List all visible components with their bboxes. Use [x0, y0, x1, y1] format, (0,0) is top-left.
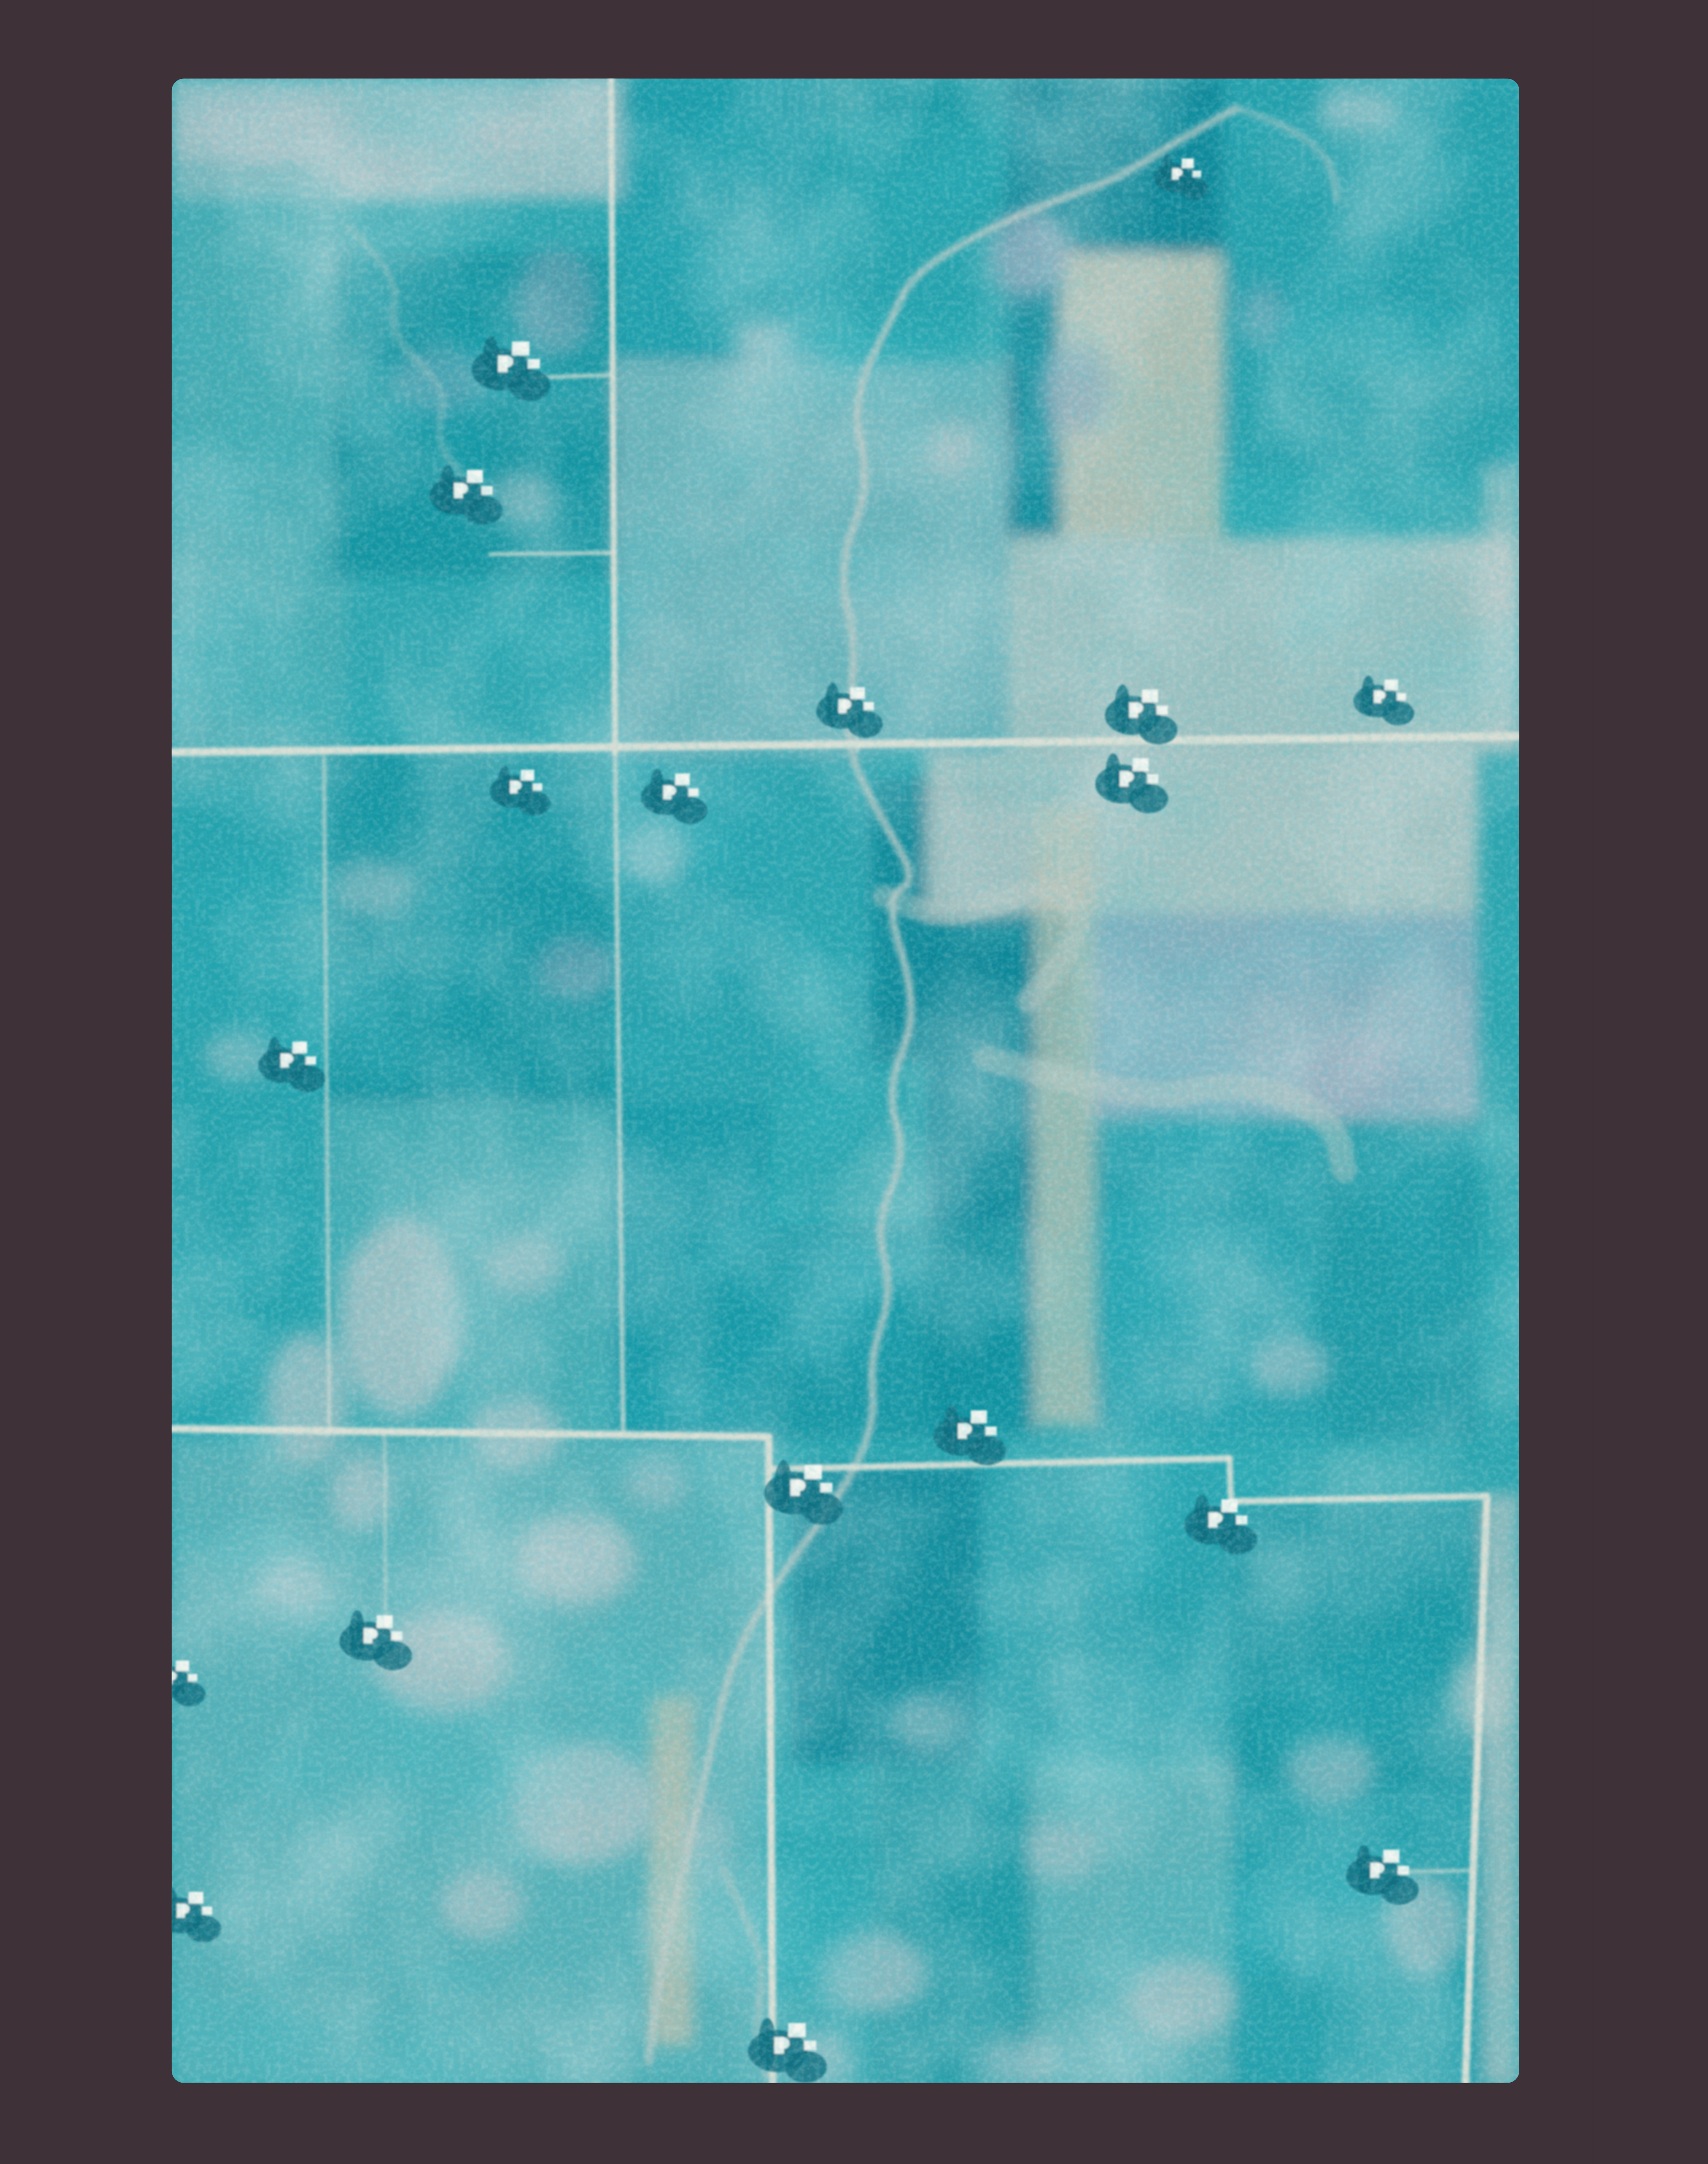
film-border	[0, 0, 1708, 2164]
film-grain-dark	[172, 79, 1519, 2083]
photo-area	[145, 79, 1519, 2087]
aerial-photo	[0, 0, 1708, 2164]
